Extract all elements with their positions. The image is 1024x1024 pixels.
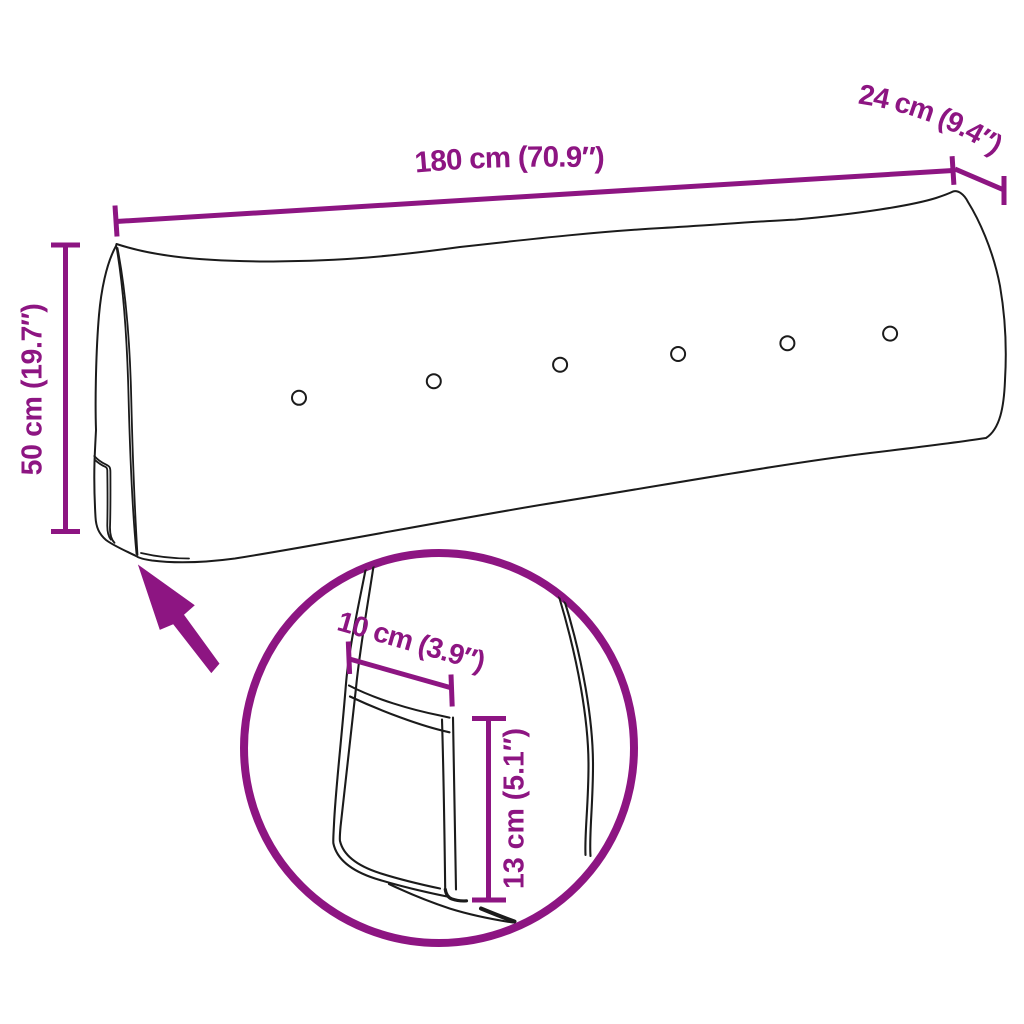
svg-text:50 cm (19.7″): 50 cm (19.7″) bbox=[17, 304, 49, 476]
svg-text:180 cm (70.9″): 180 cm (70.9″) bbox=[413, 141, 604, 180]
svg-text:13 cm (5.1″): 13 cm (5.1″) bbox=[499, 728, 531, 889]
